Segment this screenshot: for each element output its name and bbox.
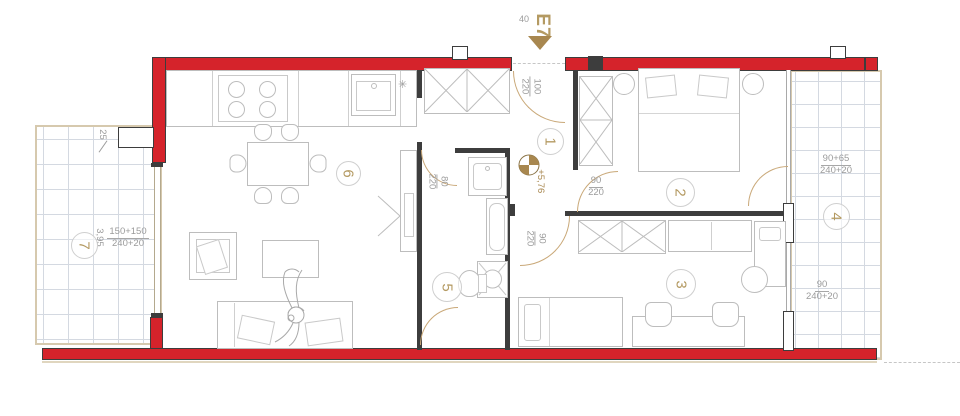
blanket-line (639, 113, 739, 114)
room-circle-3: 3 (666, 269, 696, 299)
toilet-cistern (478, 274, 487, 293)
shower-column (486, 198, 508, 255)
door-label-room2: 90 220 (581, 176, 611, 199)
room-circle-7: 7 (71, 232, 98, 259)
desk-chair (645, 302, 672, 327)
pillow (697, 74, 729, 98)
wardrobe-x-pattern (579, 221, 665, 252)
door-label-bathroom: 80 220 (426, 166, 449, 196)
wall-left (152, 57, 166, 163)
side-table (741, 266, 768, 293)
pillow (524, 304, 541, 341)
counter-seam (348, 71, 349, 126)
single-bed (518, 297, 623, 347)
wall-kitchen-stub (417, 70, 422, 98)
armchair (189, 232, 237, 280)
door-label-room3: 90 220 (524, 223, 547, 253)
double-bed (638, 68, 740, 172)
bathroom-sink (468, 157, 507, 196)
entrance-arrow-icon (528, 36, 552, 50)
dining-table (247, 142, 309, 186)
person-figure (255, 266, 325, 351)
shower-tray (489, 203, 505, 251)
counter-seam (212, 71, 213, 126)
room-circle-2: 2 (666, 178, 695, 207)
wall-bathroom-top (455, 148, 508, 153)
window-balcony7-cap-bottom (151, 313, 163, 317)
site-boundary-dashed (884, 362, 960, 363)
wardrobe-x-pattern (580, 77, 612, 164)
tv-unit (400, 150, 417, 252)
entrance-threshold (513, 63, 565, 64)
sofa-armrest-seam (234, 303, 235, 347)
wall-joint-mark (864, 57, 866, 71)
room-circle-6: 6 (336, 161, 361, 186)
dining-chair (254, 124, 272, 141)
wardrobe-room2 (579, 76, 613, 166)
wall-pier-top-a (452, 46, 468, 60)
dining-chair (230, 155, 247, 173)
sideboard-room3 (668, 220, 752, 252)
burner (259, 101, 276, 118)
wall-pier-top-b (588, 56, 603, 71)
cooktop (218, 75, 288, 122)
room-circle-1: 1 (537, 128, 564, 155)
dining-chair (281, 187, 299, 204)
kitchen-sink (351, 74, 396, 116)
entrance-width-label: 40 (519, 15, 529, 25)
tv-angle-lines (376, 194, 402, 238)
dim-balcony7-length: 150+150 240+20 (102, 227, 154, 250)
window-frame-room3 (783, 311, 794, 351)
wall-bathroom-left (417, 142, 422, 350)
dining-chair (310, 155, 327, 173)
burner (228, 81, 245, 98)
dining-chair (281, 124, 299, 141)
pillow (759, 227, 781, 241)
level-value: +5,76 (535, 169, 545, 209)
wall-left-lower-stub (150, 317, 163, 352)
window-balcony7 (154, 163, 161, 317)
wall-bottom (42, 348, 877, 360)
room-circle-4: 4 (823, 203, 850, 230)
dining-chair (254, 187, 272, 204)
wall-bottom-trim (42, 361, 877, 363)
pillow (645, 74, 677, 98)
dim-balcony4-b: 90 240+20 (792, 280, 852, 303)
closet-x-pattern (425, 69, 509, 112)
sideboard-seam (711, 222, 712, 250)
wardrobe-room3 (578, 220, 666, 254)
window-balcony7-cap-top (151, 163, 163, 167)
hall-closet (424, 68, 510, 114)
nightstand (742, 73, 764, 95)
faucet-icon (371, 83, 377, 89)
wall-pier-top-c (830, 46, 846, 59)
burner (228, 101, 245, 118)
wall-pier-left (118, 127, 154, 148)
burner (259, 81, 276, 98)
bathroom-lower-door-arc (420, 307, 458, 345)
wall-hall-room2 (573, 70, 578, 170)
floor-plan: ✳ (0, 0, 960, 416)
door-label-entrance: 100 220 (519, 71, 542, 101)
blanket-line (549, 298, 550, 346)
faucet-icon (485, 166, 490, 171)
room2-balcony-door-arc (748, 166, 788, 206)
nightstand (613, 73, 635, 95)
dim-balcony7-width: 25 (97, 129, 107, 147)
appliance-icon: ✳ (398, 79, 407, 91)
dim-balcony4-a: 90+65 240+20 (806, 154, 866, 177)
counter-seam (298, 71, 299, 126)
room-circle-5: 5 (432, 272, 462, 302)
tv-screen (404, 193, 414, 237)
desk-chair (712, 302, 739, 327)
